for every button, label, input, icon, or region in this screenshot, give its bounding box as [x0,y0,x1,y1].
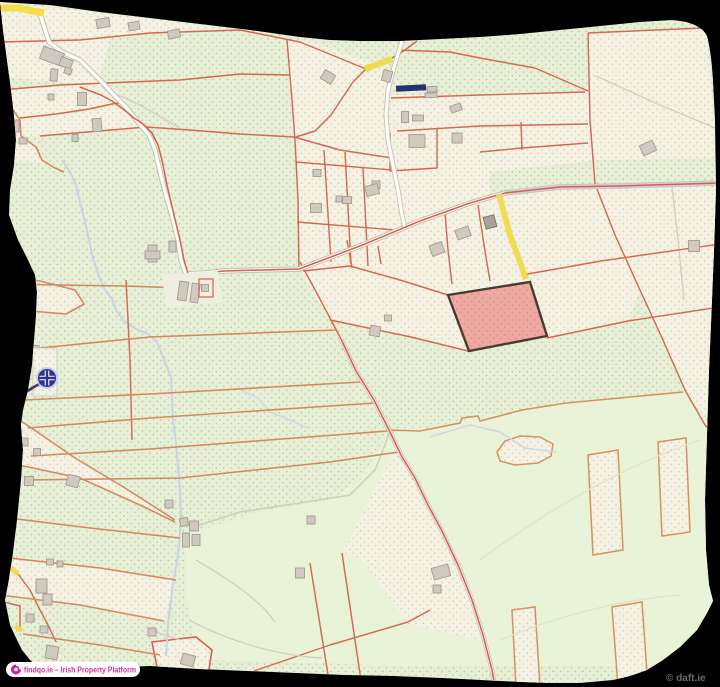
svg-text:© daft.ie: © daft.ie [666,673,706,684]
svg-text:findqo.ie – Irish Property Pla: findqo.ie – Irish Property Platform [24,665,136,674]
